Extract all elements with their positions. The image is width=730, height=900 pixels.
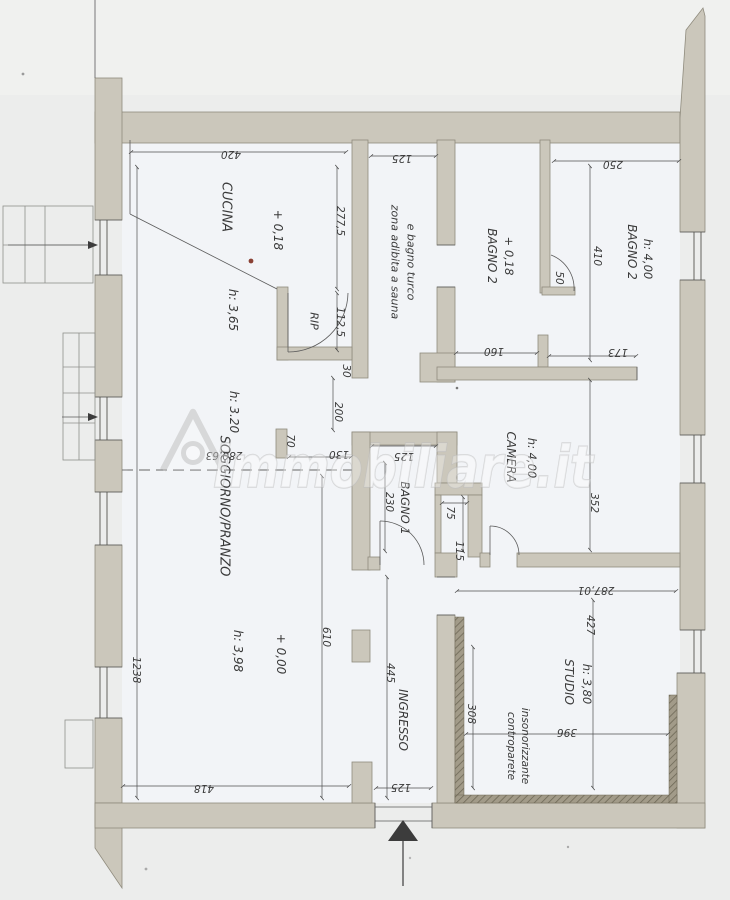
height-cucina: h: 3,65 [226,289,240,331]
wall-top [95,112,680,143]
wall-sauna-east-upper [437,140,455,245]
dim-418: 418 [194,782,214,794]
dim-30: 30 [340,364,352,378]
wall-bottom-left [95,803,375,828]
floor-plan: CUCINA + 0,18 h: 3,65 RIP zona adibita a… [0,0,730,900]
dim-173: 173 [608,346,628,358]
level-bagno2-left: + 0,18 [502,237,516,276]
dim-125-sauna: 125 [392,152,412,164]
dim-396: 396 [557,726,577,738]
wall-bagno2-ledge-50 [542,287,575,295]
dim-112-5: 112,5 [334,307,346,337]
wall-south-stub [352,762,372,803]
lining-bottom [455,795,677,803]
dim-75: 75 [444,506,456,520]
dim-445: 445 [384,663,396,683]
studio-note-2: insonorizzante [519,708,531,784]
wall-ingresso-east [437,615,455,803]
height-bagno2-right: h: 4,00 [641,239,655,279]
wall-camera-south-b [517,553,680,567]
dim-160: 160 [484,345,504,357]
dim-200: 200 [332,402,344,422]
room-label-sauna-1: zona adibita a sauna [389,204,402,320]
wall-niche-left [435,495,441,553]
height-soggiorno-upper: h: 3.20 [227,391,241,434]
studio-note-1: controparete [505,712,517,780]
wall-left-1 [95,78,122,220]
dim-250: 250 [603,158,623,170]
wall-right-mid2 [680,483,705,630]
pillar-soggiorno [352,630,370,662]
dim-610: 610 [320,627,332,647]
wall-right-mid1 [680,280,705,435]
room-label-rip: RIP [308,312,321,330]
level-soggiorno: + 0,00 [274,634,288,675]
level-cucina: + 0,18 [271,210,285,251]
floor-plan-page: CUCINA + 0,18 h: 3,65 RIP zona adibita a… [0,0,730,900]
dim-115: 115 [453,541,465,561]
wall-bagno1-south-stub [368,557,380,570]
wall-camera-south-a [480,553,490,567]
wall-niche-right [468,495,482,557]
dim-277-5: 277,5 [334,206,346,236]
room-label-studio: STUDIO [562,659,576,705]
dim-308: 308 [465,704,477,724]
room-label-sauna-2: e bagno turco [405,224,418,301]
height-studio: h: 3,80 [580,664,594,704]
wall-bagno2-stub [538,335,548,367]
wall-bagno2-divider [540,140,550,293]
wall-bottom-right [432,803,705,828]
dim-427: 427 [584,615,596,635]
dim-1238: 1238 [130,657,142,684]
wall-sauna-west [352,140,368,378]
dim-50: 50 [553,271,565,285]
wall-left-2 [95,275,122,397]
lining-right [669,695,677,803]
dim-420: 420 [221,148,241,160]
lining-left [455,617,464,803]
wall-camera-north [437,367,637,380]
watermark-house-window [184,444,203,463]
wall-left-4 [95,545,122,667]
wall-left-3 [95,440,122,492]
dim-287-01: 287,01 [578,584,615,596]
room-label-bagno2-right: BAGNO 2 [625,224,639,280]
room-label-cucina: CUCINA [219,182,234,232]
wall-left-5 [95,718,122,803]
dim-410: 410 [591,246,603,266]
watermark-text: immobiliare.it [213,433,595,501]
dim-125-entrance: 125 [391,781,411,793]
room-label-bagno2-left: BAGNO 2 [485,228,499,284]
room-label-ingresso: INGRESSO [396,689,410,751]
red-speck [249,259,254,264]
height-soggiorno-lower: h: 3,98 [231,630,245,673]
